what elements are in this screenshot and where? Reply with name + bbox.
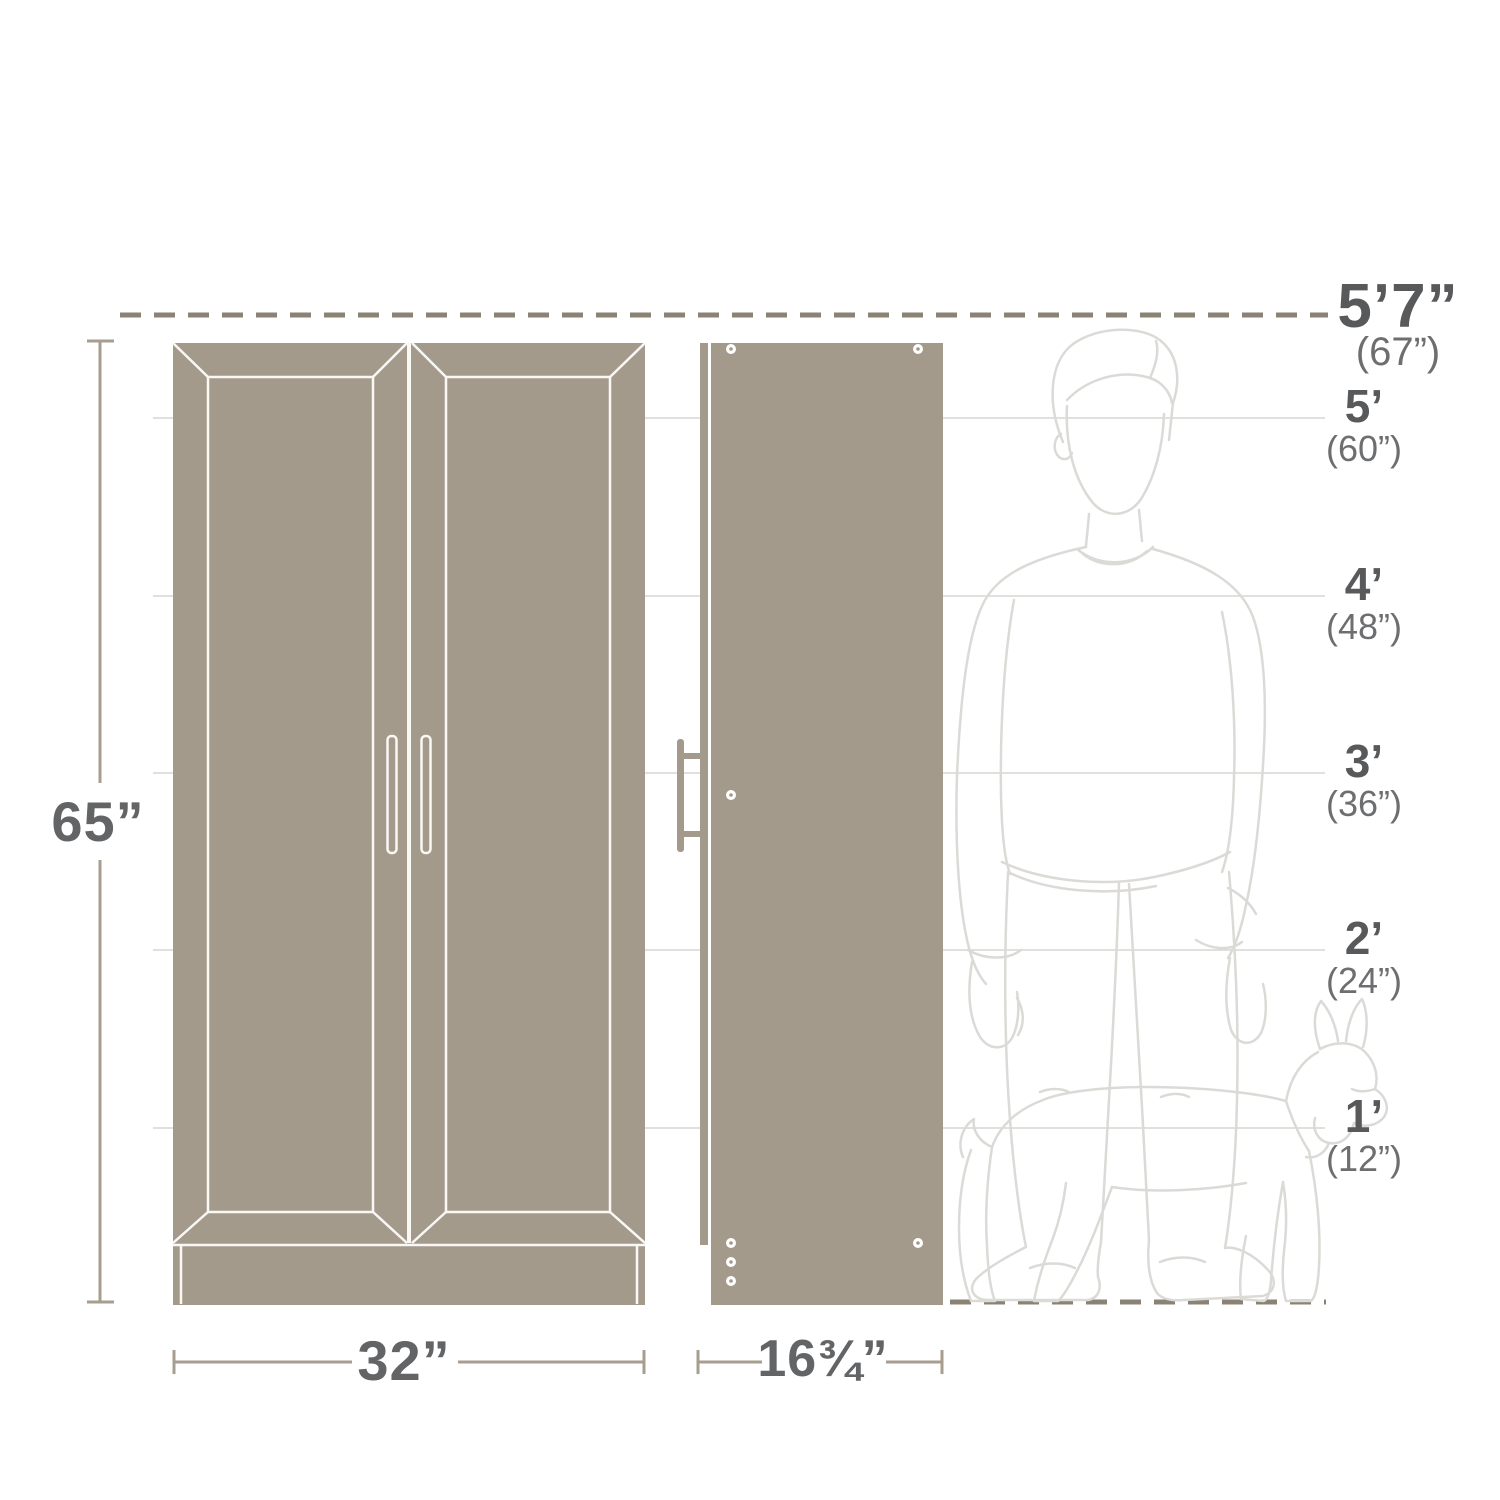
scale-feet-label: 2’ — [1326, 915, 1402, 961]
dog-ear-right — [1346, 999, 1367, 1047]
person-knee-crease-right — [1161, 1094, 1189, 1097]
dog-tail — [960, 1119, 992, 1157]
max-height-feet-label: 5’7” — [1337, 276, 1458, 338]
scale-mark-1ft: 1’ (12”) — [1326, 1093, 1402, 1177]
dog-front-leg-near — [1283, 1151, 1320, 1301]
person-hair-sweep — [1067, 375, 1172, 403]
person-shoe-right — [1148, 1240, 1274, 1300]
max-height-inches-label: (67”) — [1356, 332, 1440, 372]
dog-belly — [1112, 1183, 1246, 1190]
width-dimension-label: 32” — [357, 1333, 450, 1389]
person-neck-left — [1086, 514, 1089, 546]
person-cuff-left — [968, 950, 1021, 958]
scale-mark-3ft: 3’ (36”) — [1326, 738, 1402, 822]
dog-ear-left — [1315, 1001, 1338, 1049]
dog-front-leg-far — [1240, 1182, 1283, 1301]
scale-mark-2ft: 2’ (24”) — [1326, 915, 1402, 999]
dog-outline-figure — [959, 999, 1387, 1301]
person-hand-right — [1226, 958, 1265, 1043]
side-handle — [677, 739, 700, 852]
person-outline-figure — [956, 330, 1273, 1301]
dimension-diagram: 65” 32” 16¾” 5’7” (67”) 5’ (60”) 4’ (48”… — [0, 0, 1500, 1500]
person-hair-strand — [1150, 341, 1157, 378]
person-leg-right-inner — [1129, 884, 1149, 1240]
scale-feet-label: 4’ — [1326, 561, 1402, 607]
person-leg-right-outer — [1225, 872, 1238, 1248]
person-face — [1067, 406, 1164, 514]
scale-mark-4ft: 4’ (48”) — [1326, 561, 1402, 645]
scale-mark-5ft: 5’ (60”) — [1326, 383, 1402, 467]
height-dimension-label: 65” — [51, 794, 144, 850]
scale-inches-label: (24”) — [1326, 963, 1402, 999]
person-arm-left — [956, 547, 1086, 984]
scale-feet-label: 5’ — [1326, 383, 1402, 429]
scale-inches-label: (48”) — [1326, 609, 1402, 645]
scale-inches-label: (36”) — [1326, 786, 1402, 822]
person-arm-right — [1153, 549, 1265, 958]
depth-dimension-label: 16¾” — [757, 1333, 888, 1385]
cabinet-front-view — [173, 343, 645, 1305]
person-leg-left-outer — [1005, 874, 1026, 1247]
side-panel — [711, 343, 943, 1305]
person-arm-right-seam — [1222, 612, 1235, 872]
cabinet-side-view — [677, 343, 943, 1305]
scale-inches-label: (60”) — [1326, 431, 1402, 467]
person-shoe-right-detail — [1160, 1258, 1205, 1263]
scale-feet-label: 1’ — [1326, 1093, 1402, 1139]
side-door-edge — [700, 343, 708, 1245]
person-arm-left-seam — [1001, 600, 1014, 874]
person-knee-crease-left — [1040, 1089, 1069, 1092]
diagram-graphics — [0, 0, 1500, 1500]
person-neck-right — [1139, 510, 1142, 541]
person-shoe-left-detail — [1030, 1264, 1075, 1269]
dog-chest — [1286, 1101, 1309, 1151]
scale-inches-label: (12”) — [1326, 1141, 1402, 1177]
person-hand-left — [969, 962, 1018, 1047]
person-hem — [1002, 852, 1230, 882]
dog-back — [992, 1052, 1318, 1147]
person-hair — [1053, 330, 1178, 442]
scale-feet-label: 3’ — [1326, 738, 1402, 784]
